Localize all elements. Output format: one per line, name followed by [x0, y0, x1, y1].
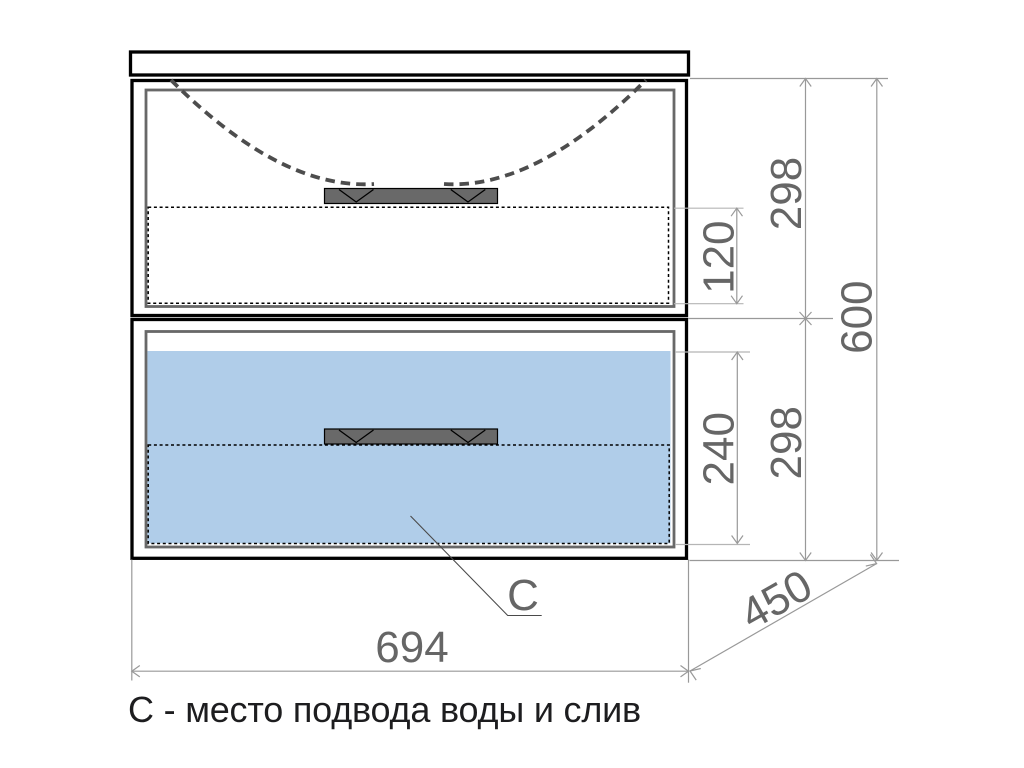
svg-text:C: C — [507, 571, 539, 620]
svg-text:298: 298 — [762, 406, 811, 479]
svg-text:240: 240 — [695, 412, 744, 485]
svg-text:298: 298 — [762, 157, 811, 230]
svg-text:600: 600 — [833, 280, 882, 353]
svg-text:694: 694 — [375, 623, 448, 672]
svg-text:С - место подвода воды и слив: С - место подвода воды и слив — [128, 689, 641, 730]
svg-text:120: 120 — [694, 220, 743, 293]
